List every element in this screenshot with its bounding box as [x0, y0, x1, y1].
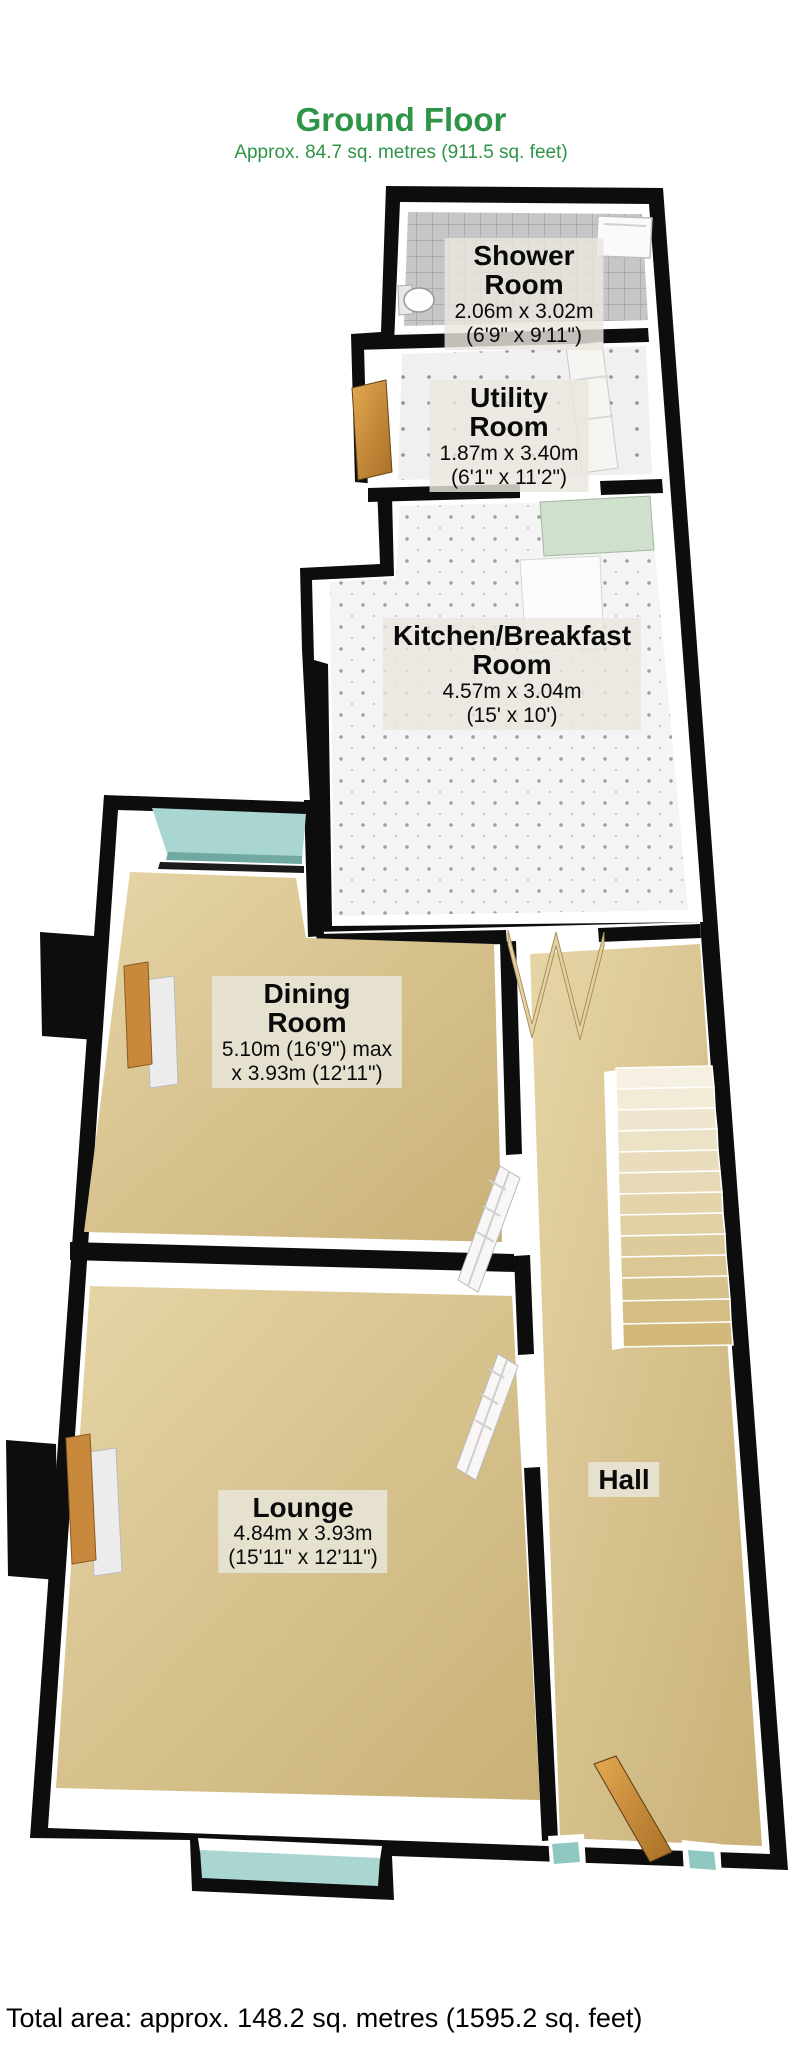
room-dimensions-imperial: x 3.93m (12'11") [222, 1062, 392, 1086]
lounge-chimney-breast [6, 1440, 58, 1580]
room-label-lounge: Lounge 4.84m x 3.93m (15'11" x 12'11") [218, 1490, 387, 1573]
bay-window [198, 1838, 382, 1886]
lounge-fireplace [66, 1434, 122, 1576]
room-dimensions-metric: 5.10m (16'9") max [222, 1038, 392, 1062]
page-title: Ground Floor [0, 102, 802, 138]
kitchen-counter [540, 496, 654, 556]
room-label-dining-room: Dining Room 5.10m (16'9") max x 3.93m (1… [212, 976, 402, 1088]
room-name: Room [393, 650, 631, 679]
room-dimensions-metric: 1.87m x 3.40m [440, 442, 579, 466]
room-dimensions-metric: 4.57m x 3.04m [393, 680, 631, 704]
room-label-kitchen-breakfast-room: Kitchen/Breakfast Room 4.57m x 3.04m (15… [383, 618, 641, 730]
staircase [604, 1066, 733, 1350]
room-name: Dining [222, 979, 392, 1008]
room-name: Utility [440, 383, 579, 412]
dining-chimney-breast [40, 932, 96, 1040]
room-name: Room [455, 270, 594, 299]
room-label-shower-room: Shower Room 2.06m x 3.02m (6'9" x 9'11") [445, 238, 604, 350]
room-name: Lounge [228, 1493, 377, 1522]
room-dimensions-metric: 4.84m x 3.93m [228, 1522, 377, 1546]
room-dimensions-imperial: (6'9" x 9'11") [455, 324, 594, 348]
room-label-utility-room: Utility Room 1.87m x 3.40m (6'1" x 11'2"… [430, 380, 589, 492]
page-subtitle: Approx. 84.7 sq. metres (911.5 sq. feet) [0, 142, 802, 165]
room-name: Room [440, 412, 579, 441]
room-name: Kitchen/Breakfast [393, 621, 631, 650]
room-name: Shower [455, 241, 594, 270]
room-dimensions-imperial: (6'1" x 11'2") [440, 466, 579, 490]
room-dimensions-metric: 2.06m x 3.02m [455, 300, 594, 324]
utility-door [352, 380, 392, 480]
room-name: Room [222, 1008, 392, 1037]
room-dimensions-imperial: (15' x 10') [393, 704, 631, 728]
floorplan-page: Ground Floor Approx. 84.7 sq. metres (91… [0, 0, 802, 2048]
room-label-hall: Hall [588, 1462, 659, 1497]
room-dimensions-imperial: (15'11" x 12'11") [228, 1546, 377, 1570]
sidelight-left [552, 1842, 580, 1864]
shower-enclosure [596, 216, 652, 258]
total-area-text: Total area: approx. 148.2 sq. metres (15… [6, 2002, 802, 2034]
room-name: Hall [598, 1465, 649, 1494]
sidelight-right [688, 1850, 716, 1870]
